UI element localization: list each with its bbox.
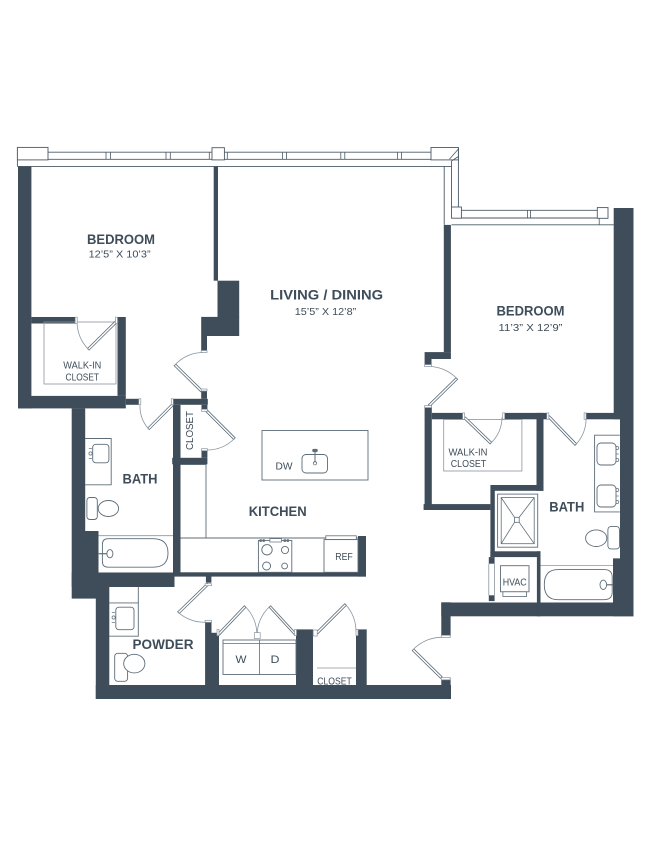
- svg-text:D: D: [271, 654, 280, 666]
- svg-text:BATH: BATH: [549, 499, 584, 515]
- svg-text:BATH: BATH: [123, 472, 158, 487]
- svg-text:WALK-IN: WALK-IN: [63, 360, 101, 372]
- svg-text:CLOSET: CLOSET: [185, 411, 196, 450]
- svg-text:CLOSET: CLOSET: [451, 458, 487, 470]
- svg-text:12’5” X 10’3”: 12’5” X 10’3”: [89, 249, 152, 261]
- svg-text:CLOSET: CLOSET: [317, 676, 352, 688]
- svg-text:BEDROOM: BEDROOM: [497, 303, 565, 319]
- svg-text:W: W: [236, 654, 248, 666]
- svg-text:DW: DW: [276, 461, 293, 473]
- svg-text:KITCHEN: KITCHEN: [249, 503, 307, 519]
- svg-text:CLOSET: CLOSET: [66, 371, 100, 383]
- svg-text:15’5” X 12’8”: 15’5” X 12’8”: [295, 306, 357, 318]
- svg-text:11’3” X 12’9”: 11’3” X 12’9”: [499, 322, 564, 334]
- svg-text:LIVING / DINING: LIVING / DINING: [270, 287, 383, 303]
- svg-text:BEDROOM: BEDROOM: [87, 231, 155, 247]
- svg-text:POWDER: POWDER: [133, 637, 194, 652]
- svg-text:HVAC: HVAC: [503, 577, 527, 589]
- svg-text:REF: REF: [335, 551, 353, 563]
- svg-text:WALK-IN: WALK-IN: [449, 446, 488, 458]
